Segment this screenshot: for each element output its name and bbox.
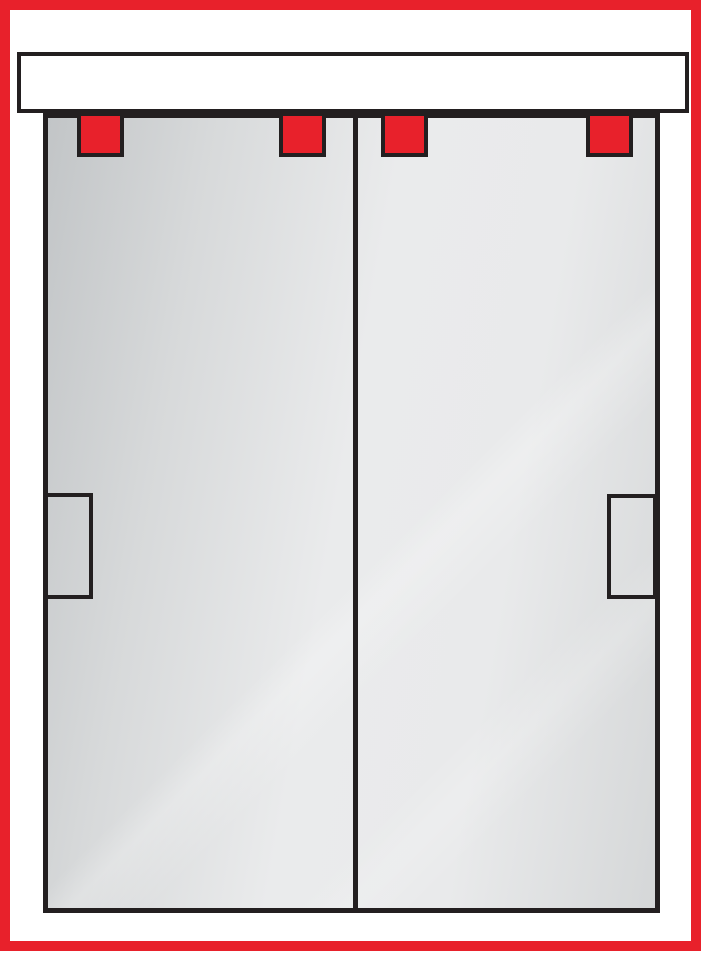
center-door-stile (353, 118, 358, 908)
right-door-handle (607, 494, 657, 599)
top-roller-4 (586, 112, 633, 157)
left-door-panel (48, 118, 353, 908)
door-assembly (43, 113, 660, 913)
top-roller-3 (381, 112, 428, 157)
top-roller-2 (279, 112, 326, 157)
left-door-handle (44, 493, 93, 599)
diagram-canvas (0, 0, 704, 954)
top-roller-1 (77, 112, 124, 157)
header-track (17, 52, 689, 113)
